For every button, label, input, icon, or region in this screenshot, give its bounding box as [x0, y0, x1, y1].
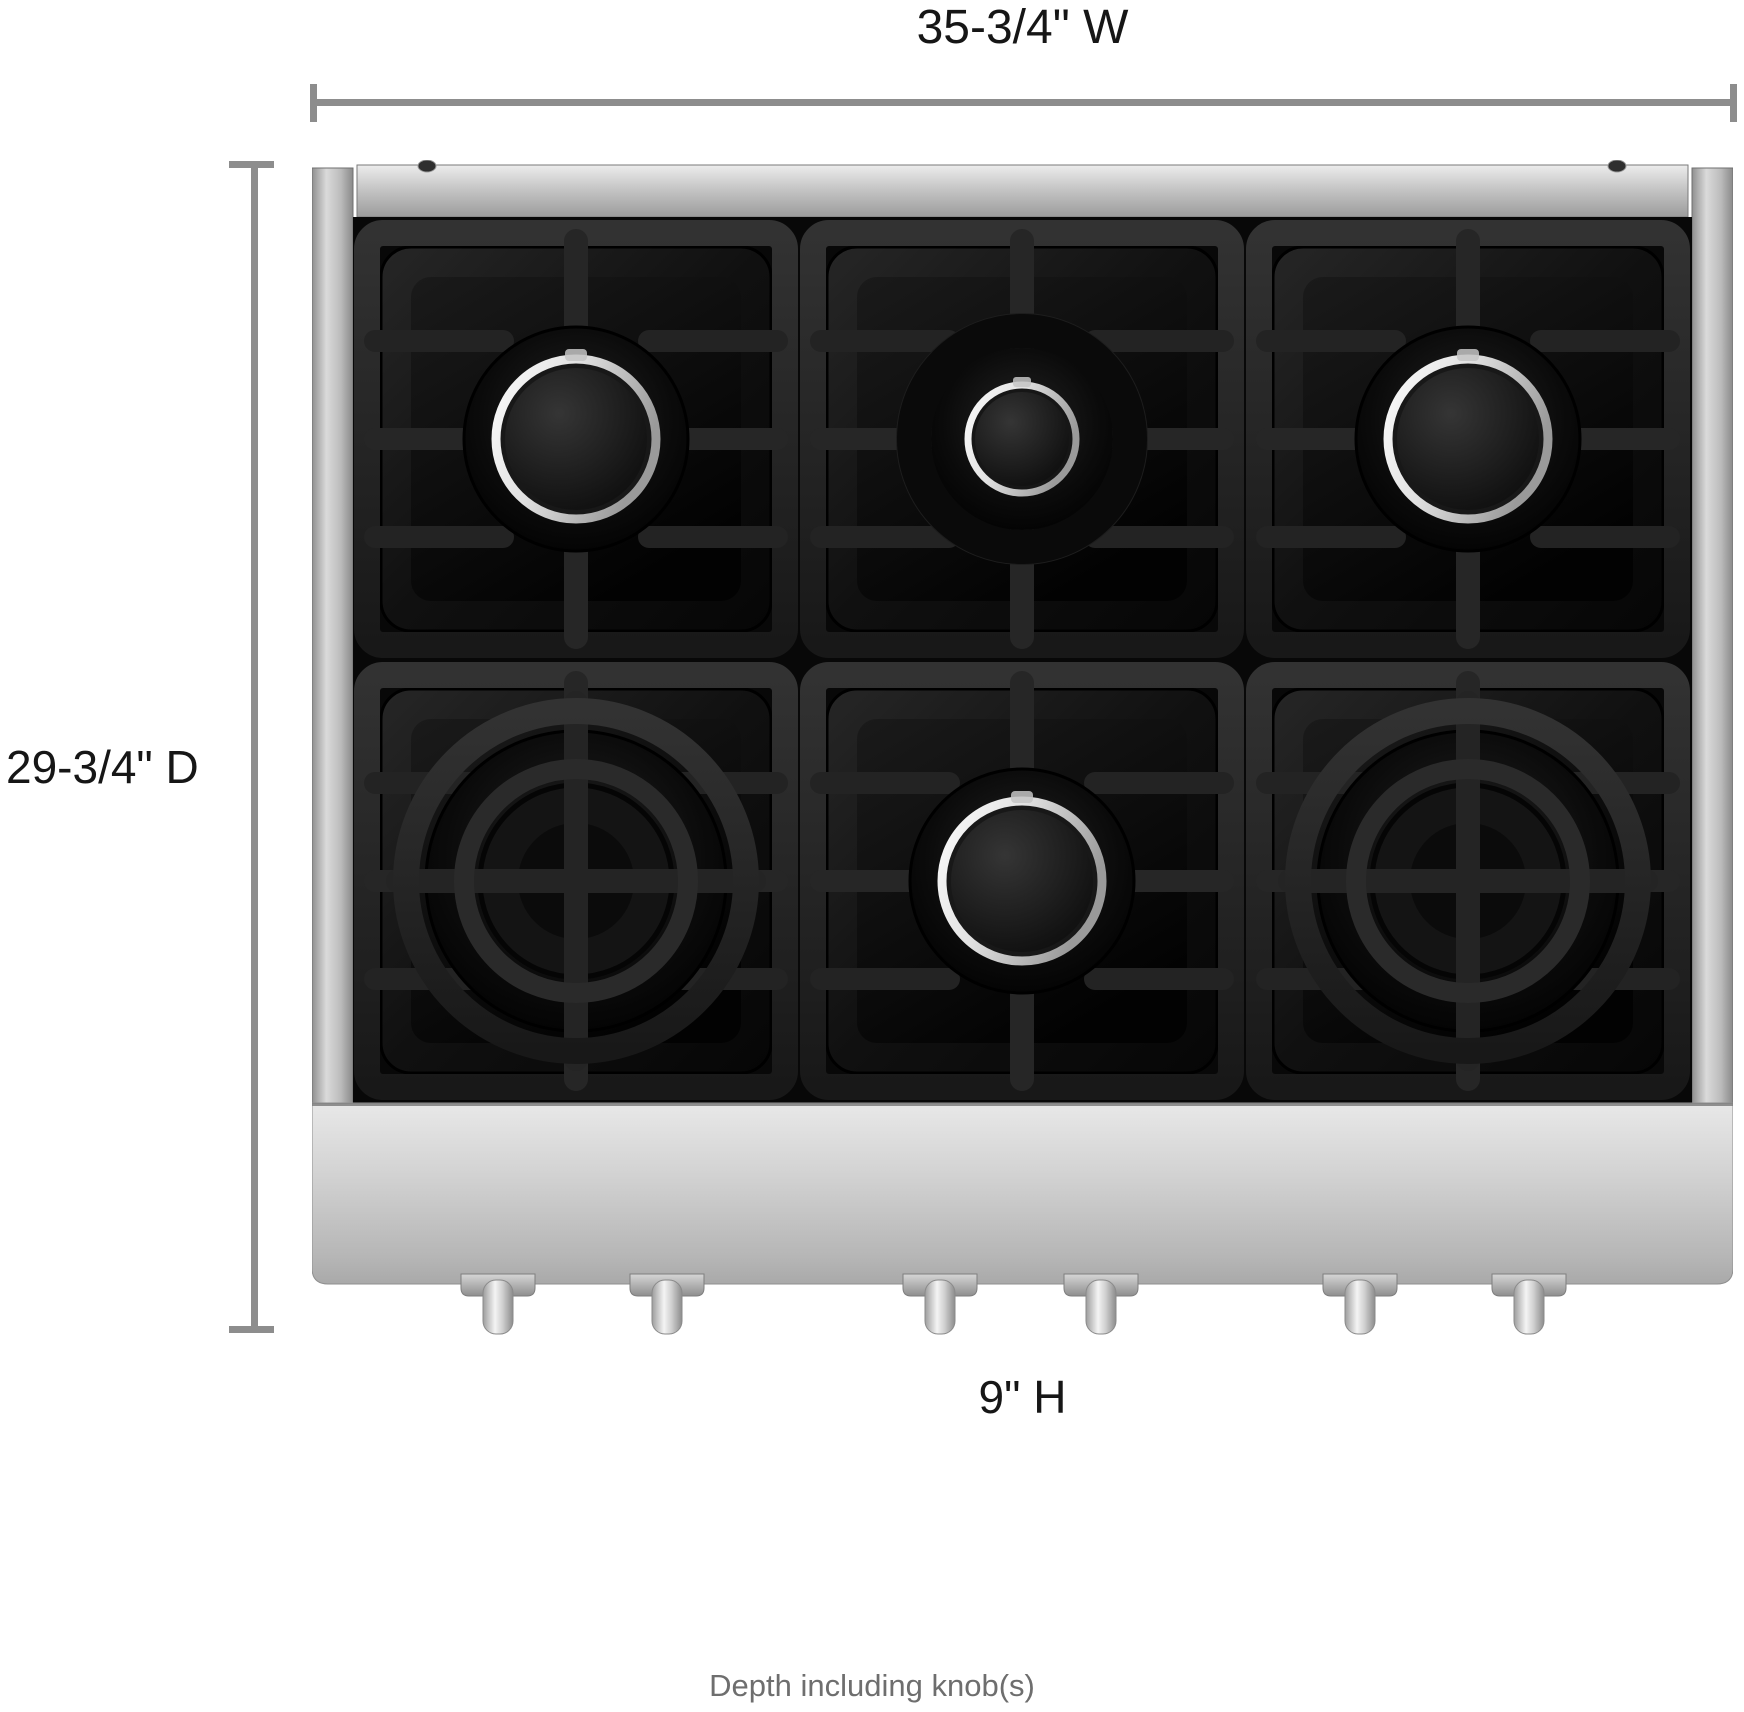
rear-trim-strip: [357, 165, 1688, 217]
depth-footnote: Depth including knob(s): [0, 1668, 1744, 1704]
control-knob-6: [1492, 1274, 1566, 1334]
diagram-canvas: 35-3/4" W 29-3/4" D 9" H Depth including…: [0, 0, 1744, 1712]
left-side-rail: [312, 168, 353, 1103]
burner-top-center: [898, 315, 1146, 563]
width-dimension-label: 35-3/4" W: [312, 2, 1733, 55]
burner-bottom-center: [910, 769, 1134, 993]
depth-dimension-line: [251, 161, 258, 1333]
burner-top-left: [464, 327, 688, 551]
width-dimension-endcap-left: [310, 84, 317, 122]
width-dimension-line: [310, 99, 1737, 106]
trim-screw-2: [1608, 160, 1626, 172]
depth-dimension-label: 29-3/4" D: [6, 742, 198, 793]
control-knob-1: [461, 1274, 535, 1334]
control-knob-2: [630, 1274, 704, 1334]
burner-bottom-left: [398, 703, 754, 1059]
depth-dimension-endcap-top: [229, 161, 274, 168]
burner-bottom-right: [1290, 703, 1646, 1059]
depth-dimension-endcap-bottom: [229, 1326, 274, 1333]
width-dimension-endcap-right: [1730, 84, 1737, 122]
burner-top-right: [1356, 327, 1580, 551]
control-knob-5: [1323, 1274, 1397, 1334]
panel-seam: [312, 1103, 1733, 1106]
height-dimension-label: 9" H: [312, 1372, 1733, 1423]
right-side-rail: [1692, 168, 1733, 1103]
control-knob-4: [1064, 1274, 1138, 1334]
rangetop-illustration: [312, 160, 1733, 1340]
front-control-panel: [312, 1103, 1733, 1284]
control-knob-3: [903, 1274, 977, 1334]
trim-screw-1: [418, 160, 436, 172]
